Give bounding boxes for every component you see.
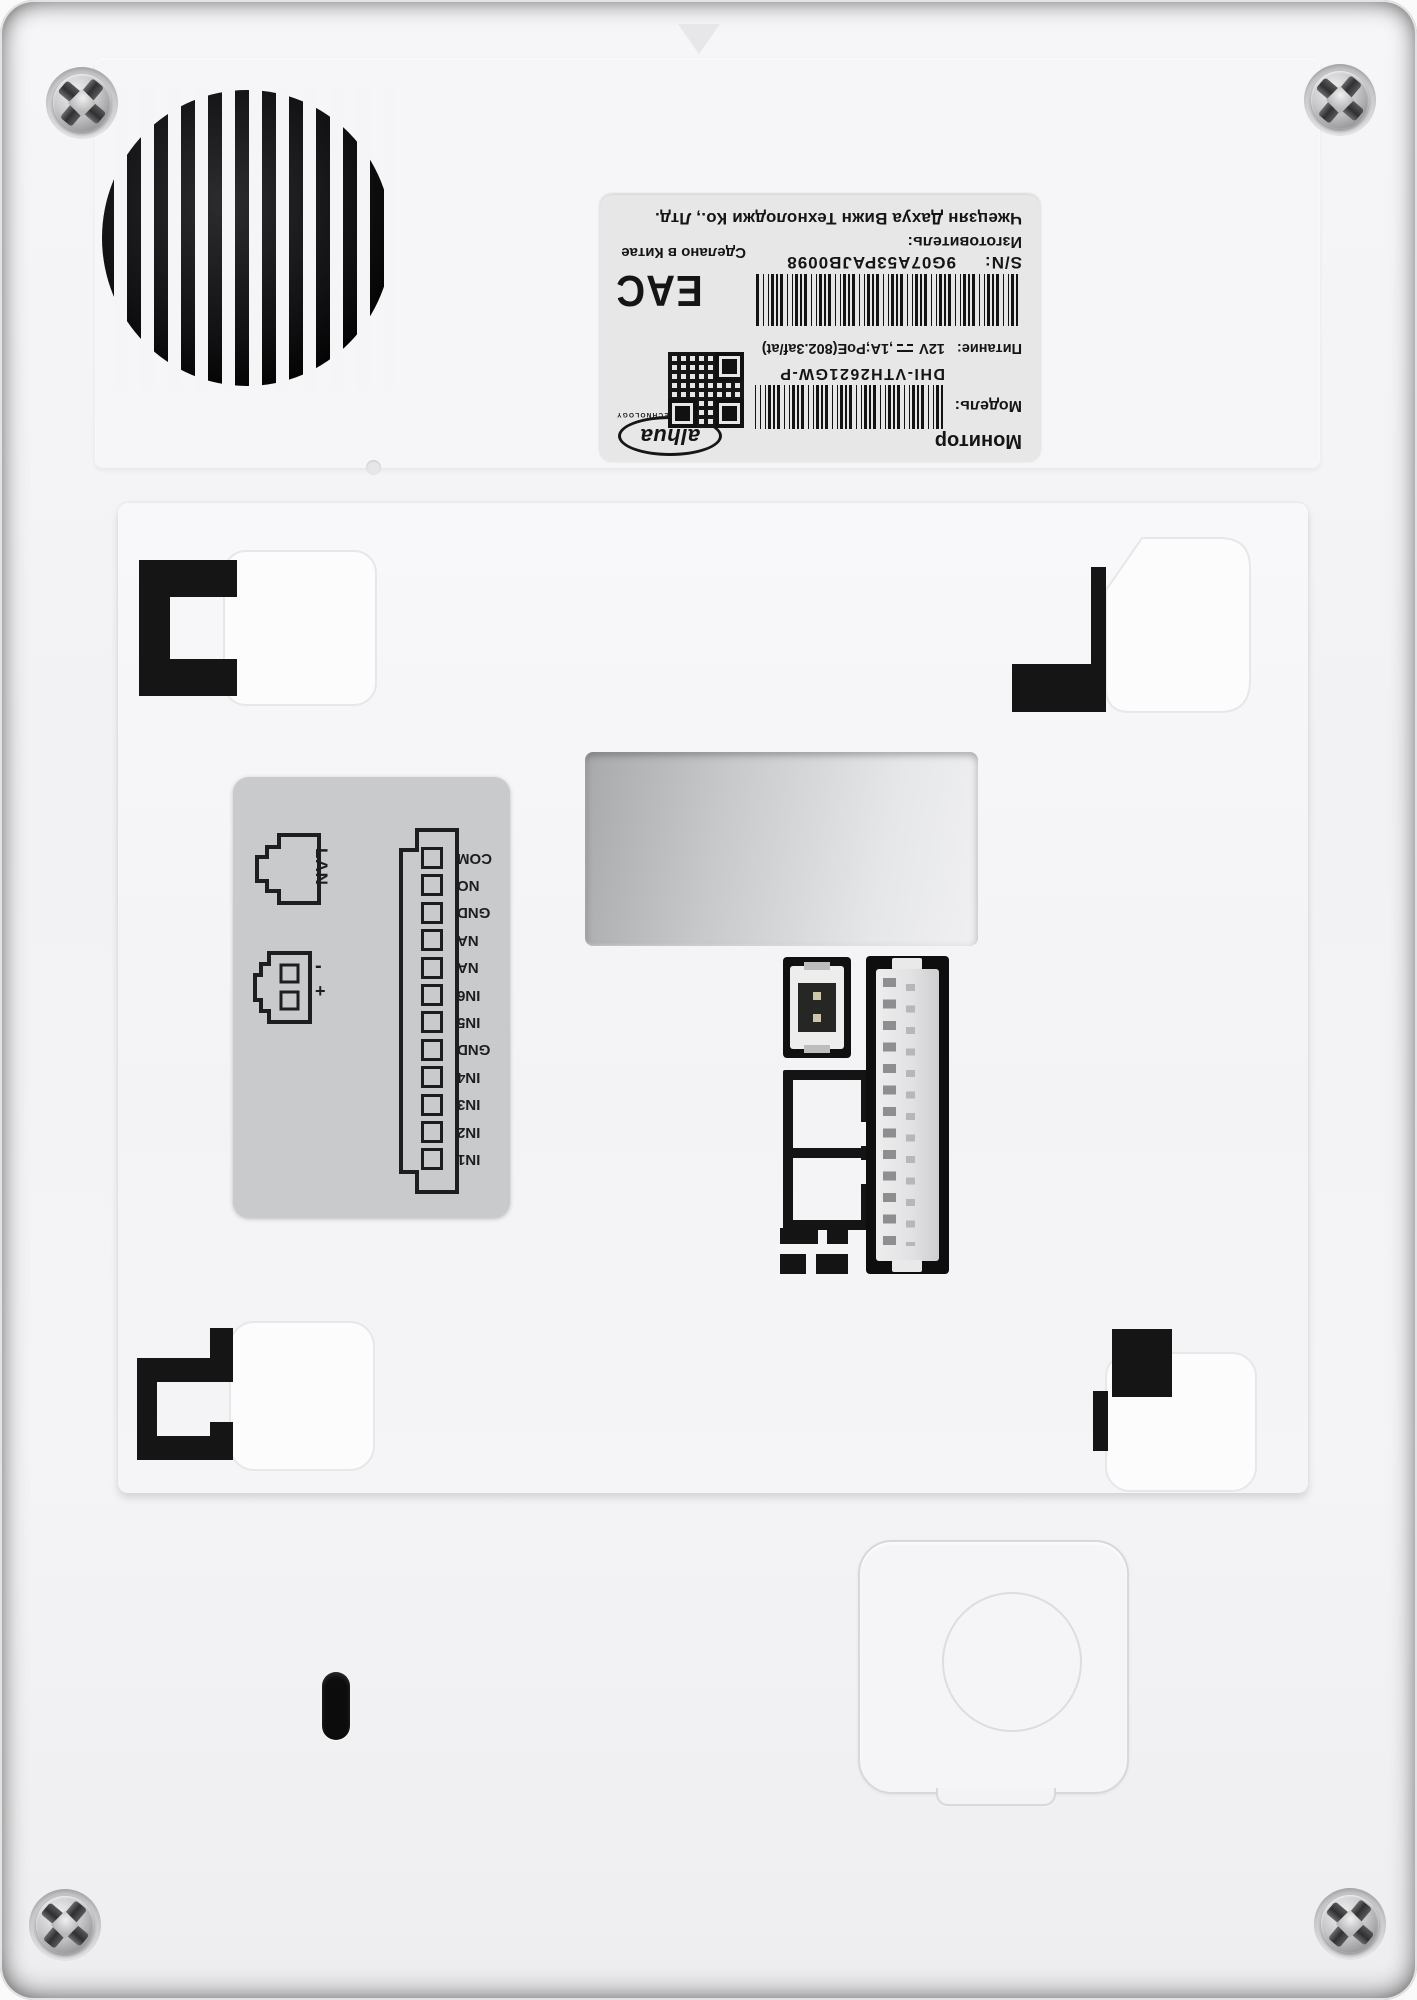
dc-symbol-icon xyxy=(897,340,913,352)
terminal-row: IN6 xyxy=(421,983,503,1007)
terminal-pin-label: GND xyxy=(457,1041,503,1058)
central-recess xyxy=(585,752,978,946)
access-cover xyxy=(858,1540,1129,1794)
phillips-screw-icon xyxy=(1321,1895,1379,1953)
qr-finder-icon xyxy=(715,399,744,428)
top-alignment-notch xyxy=(678,24,720,54)
phillips-screw-icon xyxy=(1311,71,1369,129)
terminal-row: GND xyxy=(421,1038,503,1062)
terminal-pin-label: COM xyxy=(457,850,503,867)
connector-pin xyxy=(813,1014,821,1022)
keyhole-top-right xyxy=(1000,532,1258,720)
terminal-pin-square xyxy=(421,847,443,869)
terminal-pin-square xyxy=(421,1094,443,1116)
made-in-text: Сделано в Китае xyxy=(621,244,746,261)
screw-bottom-left xyxy=(29,1889,101,1961)
screw-top-right xyxy=(1304,64,1376,136)
tab-cutout xyxy=(780,1228,818,1244)
power-voltage: 12V xyxy=(919,340,945,356)
terminal-row: IN2 xyxy=(421,1120,503,1144)
serial-barcode xyxy=(756,274,1018,326)
phillips-screw-icon xyxy=(53,74,111,132)
terminal-pin-square xyxy=(421,902,443,924)
connector-pin xyxy=(813,992,821,1000)
terminal-row: IN5 xyxy=(421,1010,503,1034)
terminal-row: NA xyxy=(421,928,503,952)
manufacturer-value: Чжецзян Дахуа Вижн Технолоджи Ко., Лтд. xyxy=(655,208,1022,228)
ports-sticker: LAN - + COMNOGNDNANAIN6IN5GNDIN4IN3IN2IN… xyxy=(233,777,510,1218)
cable-slot xyxy=(322,1672,350,1740)
serial-line: S/N: 9G07A53PAJB0098 xyxy=(786,252,1022,272)
model-label: Модель: xyxy=(955,396,1022,414)
keyhole-bottom-right xyxy=(1086,1325,1311,1495)
tab-cutout xyxy=(780,1254,806,1274)
terminal-pin-square xyxy=(421,957,443,979)
label-device-type: Монитор xyxy=(935,429,1022,452)
terminal-row: NO xyxy=(421,873,503,897)
terminal-pin-square xyxy=(421,929,443,951)
power-plug-outline xyxy=(255,953,310,1022)
terminal-pin-label: NA xyxy=(457,932,503,949)
io-header-cutout xyxy=(866,956,949,1274)
power-connector-cutout xyxy=(783,957,851,1058)
power-label: Питание: xyxy=(957,340,1022,356)
terminal-row: NA xyxy=(421,956,503,980)
serial-label: S/N: xyxy=(984,252,1022,272)
io-header-pins xyxy=(883,978,896,1252)
terminal-pin-label: IN5 xyxy=(457,1014,503,1031)
access-cover-circle xyxy=(942,1592,1082,1732)
tab-cutout-pair xyxy=(780,1228,850,1274)
photo-stage: Монитор alhua TECHNOLOGY Модель: DHI-VTH… xyxy=(0,0,1417,2000)
eac-mark: EAC xyxy=(608,265,710,315)
screw-bottom-right xyxy=(1314,1888,1386,1960)
product-label: Монитор alhua TECHNOLOGY Модель: DHI-VTH… xyxy=(600,195,1040,462)
model-barcode xyxy=(755,385,943,429)
screw-top-left xyxy=(46,67,118,139)
access-cover-tab xyxy=(936,1788,1056,1806)
terminal-row: IN1 xyxy=(421,1147,503,1171)
terminal-row: IN4 xyxy=(421,1065,503,1089)
power-spec: ,1A;PoE(802.3af/at) xyxy=(762,340,893,356)
speaker-grille xyxy=(100,86,394,390)
qr-finder-icon xyxy=(715,352,744,381)
terminal-pin-square xyxy=(421,874,443,896)
terminal-pin-square xyxy=(421,1066,443,1088)
terminal-pin-label: IN3 xyxy=(457,1096,503,1113)
qr-finder-icon xyxy=(668,399,697,428)
terminal-pin-square xyxy=(421,1039,443,1061)
power-line: Питание: 12V ,1A;PoE(802.3af/at) xyxy=(762,340,1022,356)
model-value: DHI-VTH2621GW-P xyxy=(779,364,945,382)
keyhole-bottom-left xyxy=(130,1318,375,1474)
qr-code xyxy=(668,352,744,428)
manufacturer-label: Изготовитель: xyxy=(908,232,1022,250)
power-pin-square xyxy=(281,992,298,1009)
terminal-pin-square xyxy=(421,1011,443,1033)
panel-pin-mark xyxy=(366,460,381,475)
minus-label: - xyxy=(315,955,322,978)
terminal-pin-label: GND xyxy=(457,904,503,921)
terminal-row: COM xyxy=(421,846,503,870)
plus-label: + xyxy=(315,981,326,1002)
terminal-pin-label: NO xyxy=(457,877,503,894)
terminal-pin-label: IN4 xyxy=(457,1069,503,1086)
power-connector-body xyxy=(790,966,844,1049)
io-header-slots xyxy=(906,984,915,1246)
tab-cutout xyxy=(827,1228,848,1244)
serial-value: 9G07A53PAJB0098 xyxy=(786,252,956,272)
keyhole-top-left xyxy=(132,545,382,713)
terminal-pin-label: NA xyxy=(457,959,503,976)
tab-cutout xyxy=(816,1254,848,1274)
lan-label: LAN xyxy=(311,847,331,887)
io-header-body xyxy=(876,969,939,1261)
terminal-row: GND xyxy=(421,901,503,925)
terminal-pin-square xyxy=(421,1148,443,1170)
terminal-pin-label: IN6 xyxy=(457,987,503,1004)
bracket-cutout-upper xyxy=(783,1070,871,1158)
dahua-logo-subtext: TECHNOLOGY xyxy=(616,411,674,418)
terminal-pin-label: IN2 xyxy=(457,1124,503,1141)
power-connector-socket xyxy=(798,983,836,1032)
phillips-screw-icon xyxy=(36,1896,94,1954)
terminal-pin-square xyxy=(421,984,443,1006)
bracket-cutout-lower xyxy=(783,1148,871,1230)
power-pin-square xyxy=(281,965,298,982)
lan-port-outline xyxy=(257,835,319,903)
terminal-row: IN3 xyxy=(421,1093,503,1117)
terminal-pin-label: IN1 xyxy=(457,1151,503,1168)
terminal-pin-square xyxy=(421,1121,443,1143)
